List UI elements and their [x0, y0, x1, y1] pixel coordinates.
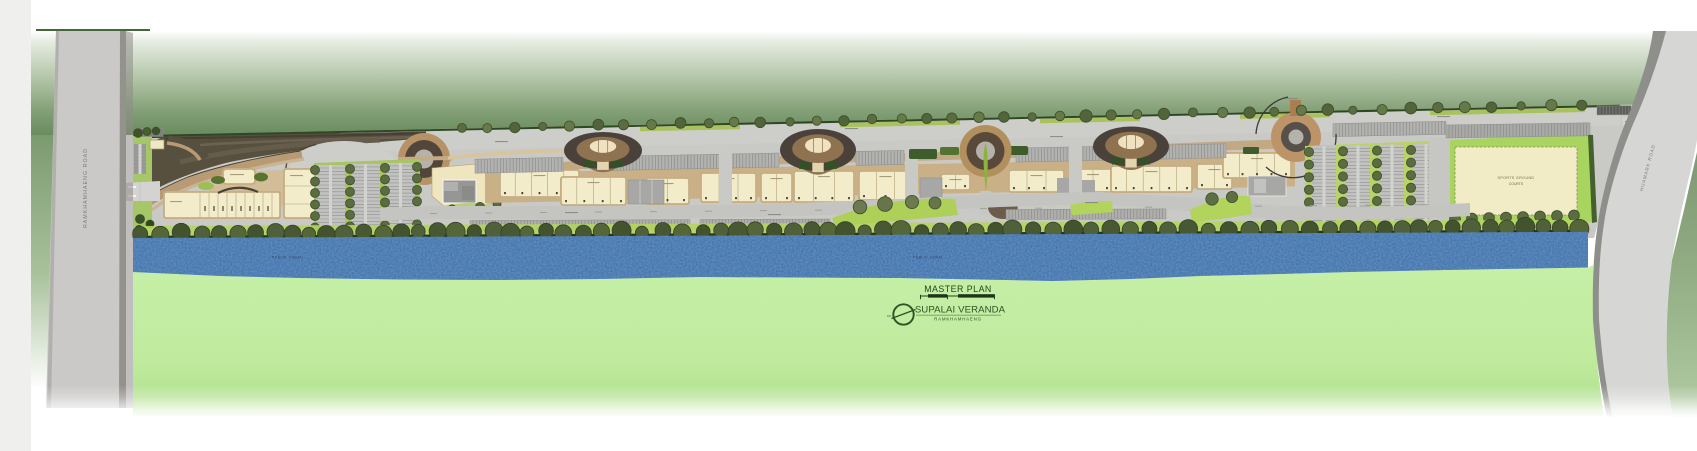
svg-text:PUBLIC CANAL: PUBLIC CANAL: [913, 256, 944, 260]
svg-text:RAMKHAMHAENG ROAD: RAMKHAMHAENG ROAD: [83, 148, 89, 228]
svg-text:TM: TM: [887, 314, 891, 318]
svg-text:SPORTS GROUND: SPORTS GROUND: [1498, 176, 1535, 180]
svg-text:PUBLIC CANAL: PUBLIC CANAL: [272, 256, 303, 260]
svg-text:RAMKHAMHAENG: RAMKHAMHAENG: [934, 317, 982, 322]
svg-text:COURTS: COURTS: [1509, 182, 1524, 186]
svg-text:MASTER PLAN: MASTER PLAN: [924, 284, 992, 294]
svg-text:SUPALAI VERANDA: SUPALAI VERANDA: [915, 305, 1006, 316]
